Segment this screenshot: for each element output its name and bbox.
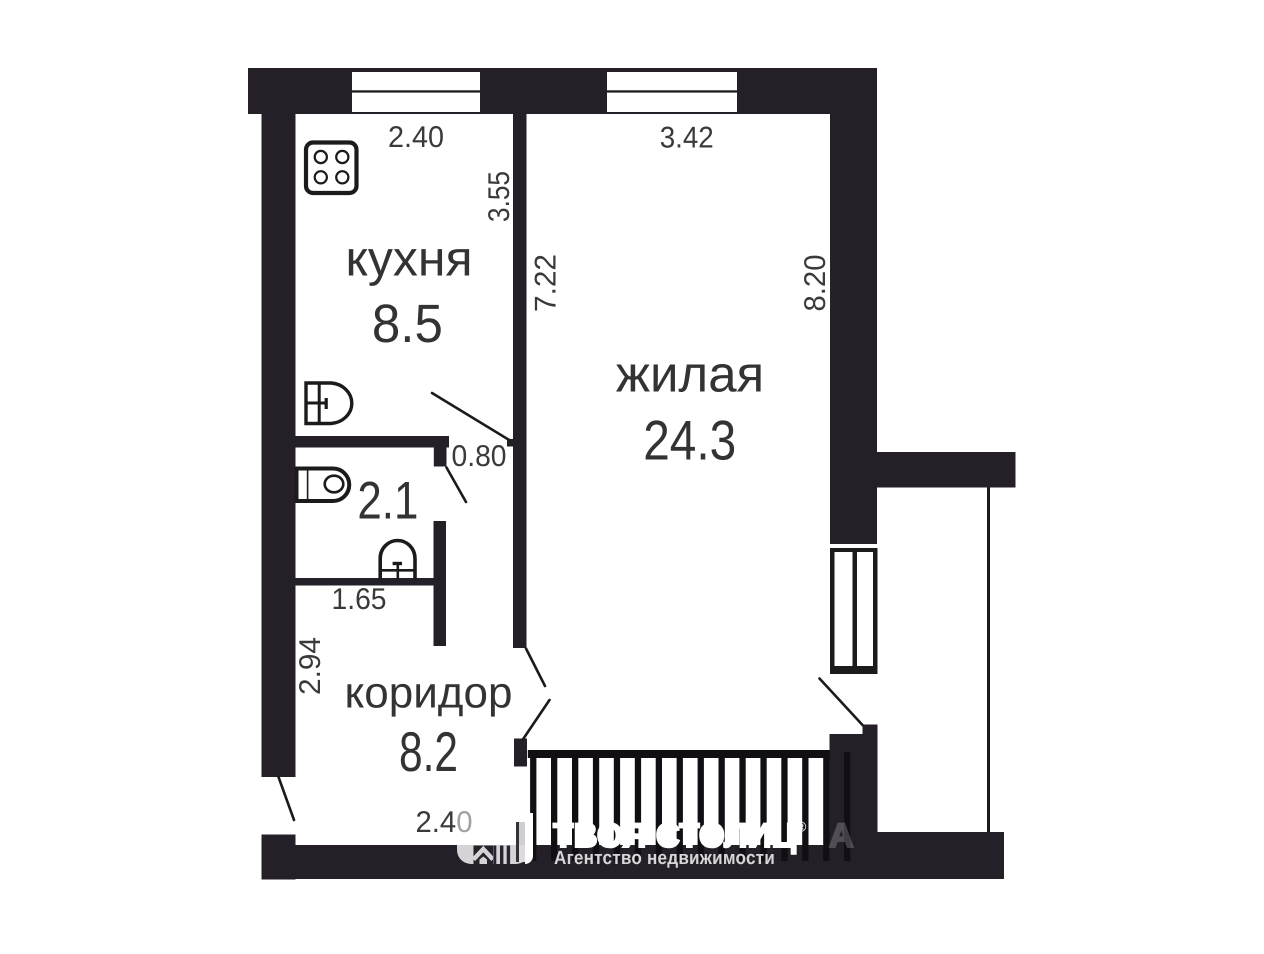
svg-text:Агентство недвижимости: Агентство недвижимости <box>554 848 775 869</box>
svg-text:0.80: 0.80 <box>452 440 507 473</box>
svg-text:8.20: 8.20 <box>799 255 832 312</box>
svg-text:коридор: коридор <box>345 669 513 718</box>
svg-text:7.22: 7.22 <box>530 254 563 312</box>
svg-text:8.5: 8.5 <box>372 294 443 354</box>
svg-text:2.94: 2.94 <box>294 637 327 695</box>
svg-text:3.55: 3.55 <box>483 171 516 222</box>
svg-text:1.65: 1.65 <box>332 583 387 616</box>
svg-text:жилая: жилая <box>616 346 764 403</box>
svg-text:кухня: кухня <box>345 231 472 287</box>
svg-text:8.2: 8.2 <box>399 720 458 783</box>
svg-text:2.1: 2.1 <box>357 472 418 531</box>
svg-text:2.40: 2.40 <box>388 121 444 154</box>
svg-text:2.40: 2.40 <box>416 806 473 839</box>
svg-text:А: А <box>829 817 854 855</box>
svg-text:24.3: 24.3 <box>643 409 736 472</box>
svg-text:®: ® <box>796 819 807 835</box>
svg-text:3.42: 3.42 <box>660 122 714 155</box>
